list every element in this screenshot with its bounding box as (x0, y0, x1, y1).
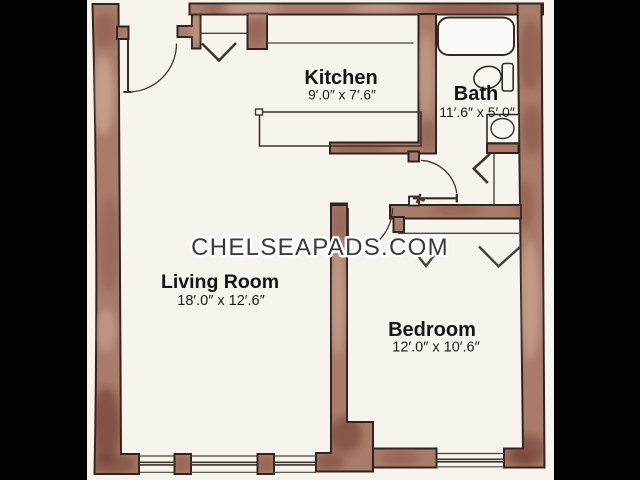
svg-text:Bedroom: Bedroom (388, 319, 476, 341)
svg-text:Living Room: Living Room (161, 271, 279, 293)
svg-text:Kitchen: Kitchen (304, 67, 377, 89)
svg-text:11′.6″ x 5′.0″: 11′.6″ x 5′.0″ (439, 104, 515, 120)
svg-text:18′.0″ x 12′.6″: 18′.0″ x 12′.6″ (177, 293, 264, 309)
svg-text:9′.0″ x 7′.6″: 9′.0″ x 7′.6″ (308, 88, 376, 103)
svg-text:12′.0″ x 10′.6″: 12′.0″ x 10′.6″ (392, 340, 479, 356)
svg-text:Bath: Bath (454, 83, 498, 105)
svg-text:CHELSEAPADS.COM: CHELSEAPADS.COM (191, 234, 449, 261)
